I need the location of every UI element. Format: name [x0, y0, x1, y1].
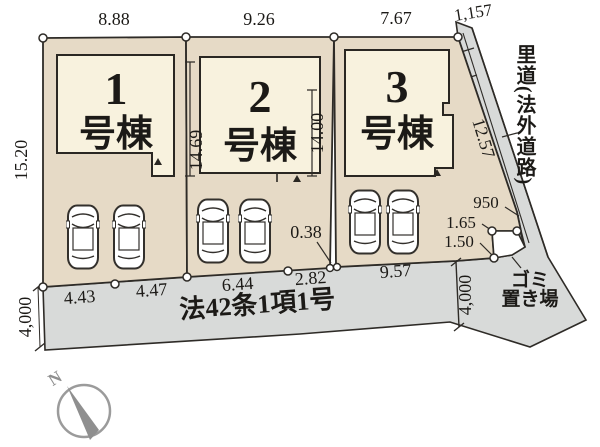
dim-offset: 0.38: [290, 222, 322, 242]
car-icon: [196, 200, 230, 263]
dim-lot2-right: 14.00: [307, 113, 327, 154]
dim-lot1-depth: 15.20: [11, 140, 31, 181]
building-2-suffix: 号棟: [223, 125, 298, 167]
dim-trash-150: 1.50: [444, 232, 474, 251]
dim-bottom-2: 4.47: [135, 279, 168, 301]
dim-top-lot1: 8.88: [98, 9, 130, 29]
dim-top-lot3: 7.67: [380, 8, 412, 28]
car-icon: [66, 206, 100, 269]
dim-trash-165: 1.65: [446, 213, 476, 232]
car-icon: [348, 191, 382, 254]
plot-plan-canvas: 1 号棟 2 号棟 3 号棟 8.88 9.26 7.67 1,157 15.2…: [0, 0, 600, 447]
car-icon: [112, 206, 146, 269]
dim-top-lot2: 9.26: [243, 9, 275, 29]
compass: N: [45, 367, 110, 440]
dim-trash-950: 950: [473, 193, 499, 212]
trash-label-line1: ゴミ: [511, 268, 549, 291]
dim-satomichi-width: 1,157: [453, 0, 494, 25]
dim-road-width-left: 4,000: [15, 297, 35, 338]
plot-plan: 1 号棟 2 号棟 3 号棟 8.88 9.26 7.67 1,157 15.2…: [0, 0, 600, 447]
dim-lot2-left: 14.69: [186, 130, 206, 171]
building-3-suffix: 号棟: [360, 113, 435, 155]
compass-north-label: N: [45, 367, 66, 390]
car-icon: [386, 191, 420, 254]
dim-bottom-5: 9.57: [379, 260, 412, 282]
car-icon: [238, 200, 272, 263]
satomichi-label: 里道(法外道路): [514, 44, 534, 185]
trash-label-line2: 置き場: [501, 288, 558, 310]
building-3-number: 3: [386, 61, 409, 112]
dim-bottom-1: 4.43: [63, 286, 96, 308]
building-1-suffix: 号棟: [79, 113, 154, 155]
building-1-number: 1: [105, 63, 128, 114]
dim-road-width-right: 4,000: [455, 275, 475, 316]
compass-needle: [67, 386, 99, 440]
building-2-number: 2: [249, 71, 272, 122]
